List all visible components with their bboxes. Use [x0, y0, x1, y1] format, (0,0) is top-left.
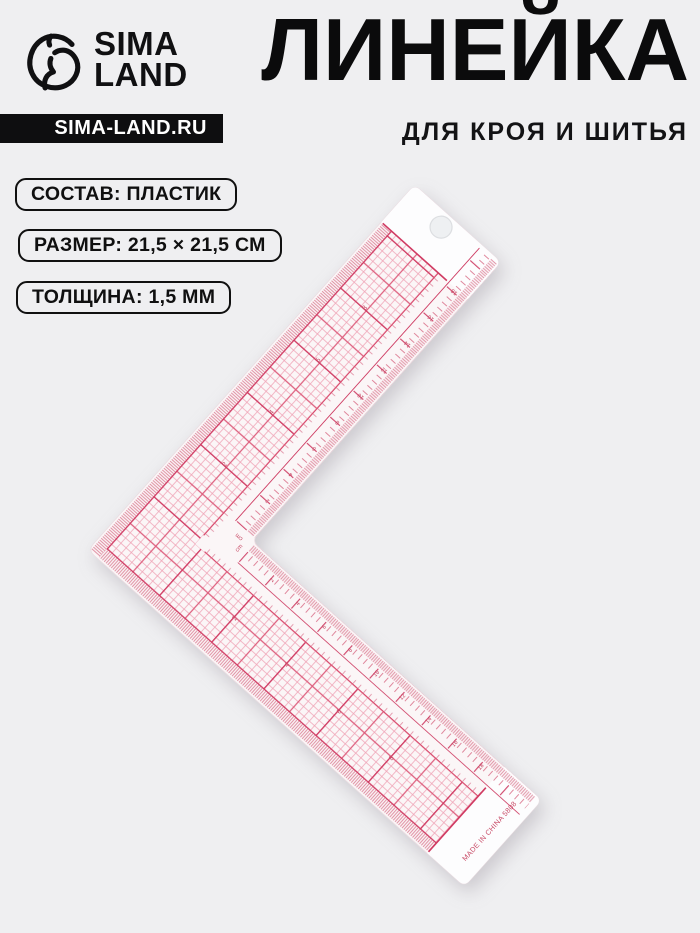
product-card: SIMA LAND SIMA-LAND.RU ЛИНЕЙКА ДЛЯ КРОЯ …: [0, 0, 700, 933]
ruler-grid-lower-arm: [153, 544, 478, 844]
ruler-body: cm cm 24681012141618 24681012141618 2468…: [88, 185, 700, 887]
ruler-photo: cm cm 24681012141618 24681012141618 2468…: [0, 0, 700, 933]
